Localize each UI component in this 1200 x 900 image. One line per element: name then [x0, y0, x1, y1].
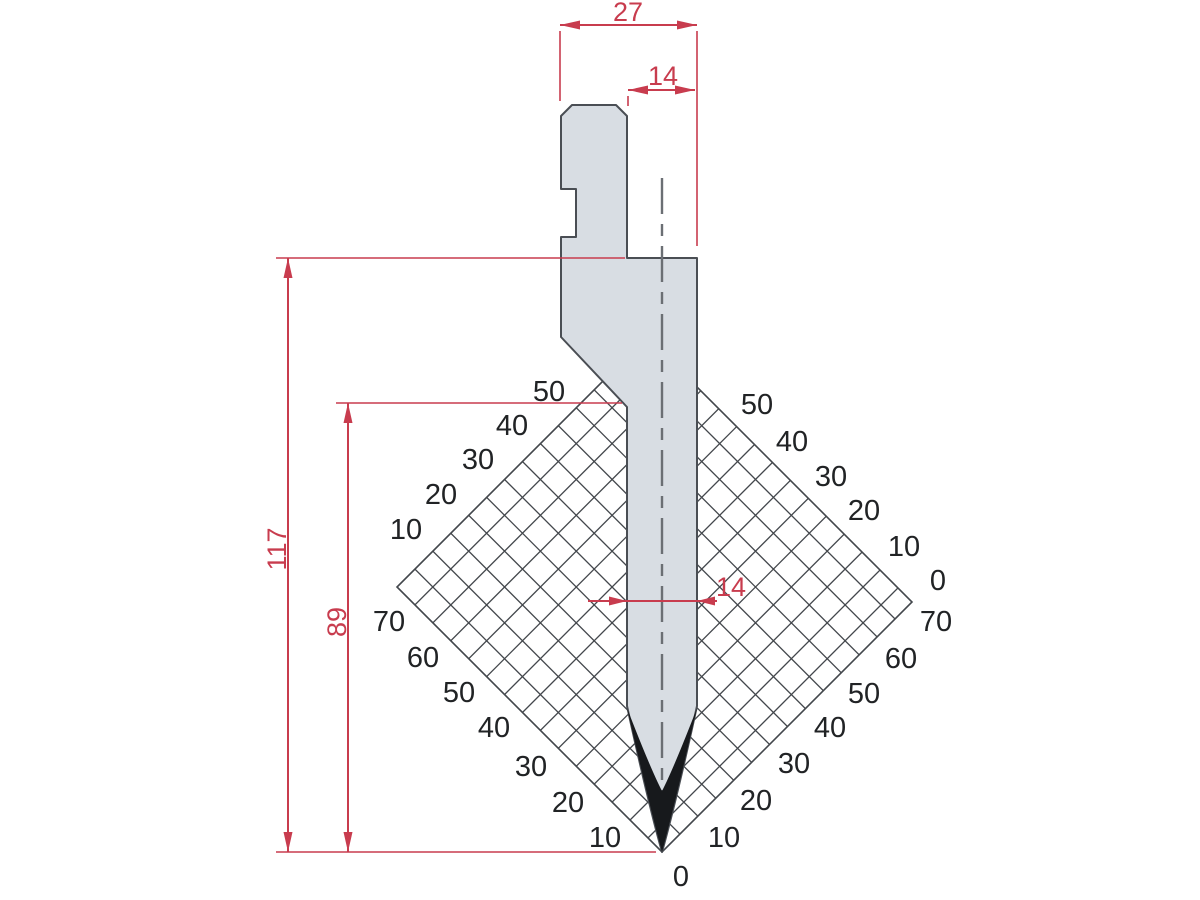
- grid-scale-label: 50: [533, 376, 565, 408]
- grid-scale-label: 10: [888, 531, 920, 563]
- grid-scale-label: 60: [407, 642, 439, 674]
- punch-technical-drawing: 27 14 117 89 14 504030201070605040302010…: [0, 0, 1200, 900]
- grid-scale-label: 20: [848, 495, 880, 527]
- grid-scale-label: 0: [930, 565, 946, 597]
- grid-scale-label: 50: [741, 389, 773, 421]
- drawing-canvas: 27 14 117 89 14 504030201070605040302010…: [0, 0, 1200, 900]
- dim-14-mid-label: 14: [716, 572, 746, 602]
- grid-scale-label: 70: [373, 606, 405, 638]
- grid-scale-label: 40: [496, 410, 528, 442]
- grid-scale-label: 60: [885, 643, 917, 675]
- dim-89-label: 89: [322, 607, 352, 637]
- dim-117-label: 117: [262, 527, 292, 570]
- grid-scale-label: 40: [478, 712, 510, 744]
- grid-scale-label: 10: [589, 822, 621, 854]
- dim-14-top-label: 14: [648, 61, 678, 91]
- grid-scale-label: 30: [515, 751, 547, 783]
- grid-scale-label: 30: [462, 444, 494, 476]
- grid-scale-label: 10: [390, 514, 422, 546]
- grid-scale-label: 30: [815, 461, 847, 493]
- grid-scale-label: 40: [776, 426, 808, 458]
- grid-scale-label: 70: [920, 606, 952, 638]
- grid-scale-label: 0: [673, 861, 689, 893]
- grid-scale-label: 50: [848, 678, 880, 710]
- dim-27-label: 27: [613, 0, 643, 27]
- grid-scale-label: 40: [814, 712, 846, 744]
- grid-scale-label: 10: [708, 822, 740, 854]
- grid-scale-label: 20: [552, 787, 584, 819]
- grid-scale-label: 50: [443, 677, 475, 709]
- grid-scale-label: 30: [778, 748, 810, 780]
- grid-scale-label: 20: [425, 479, 457, 511]
- grid-scale-label: 20: [740, 785, 772, 817]
